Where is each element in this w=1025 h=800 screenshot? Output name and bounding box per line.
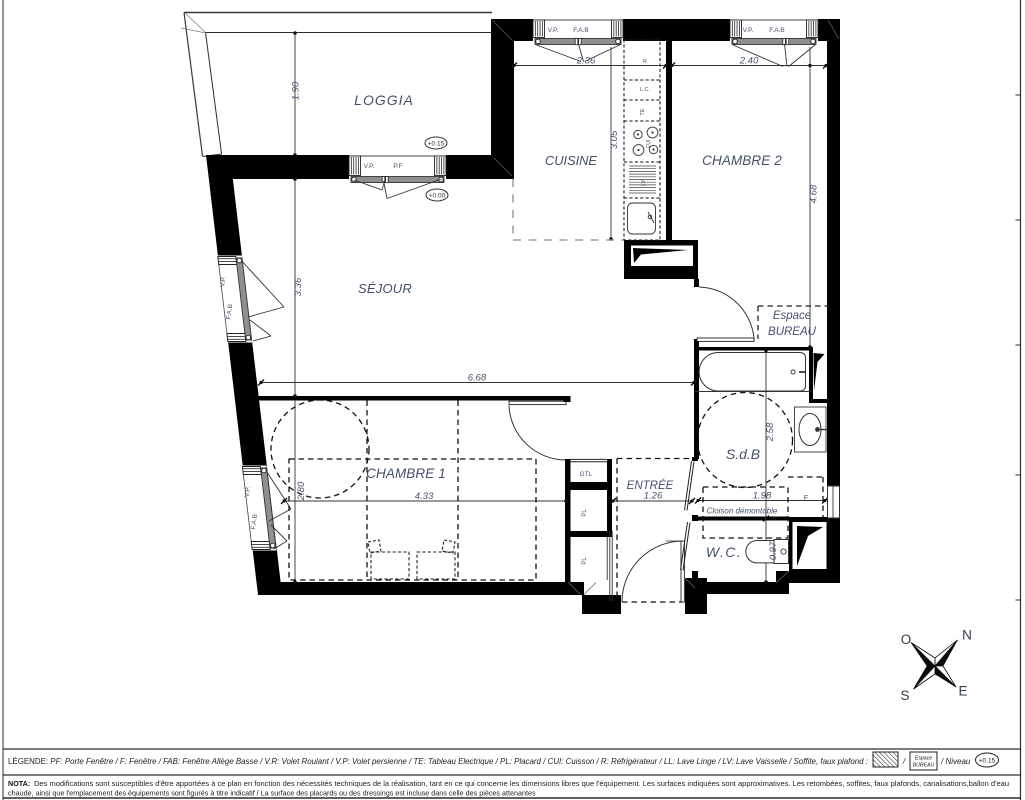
svg-text:CHAMBRE 1: CHAMBRE 1: [366, 466, 446, 481]
svg-text:R: R: [643, 59, 647, 65]
svg-text:W.C.: W.C.: [706, 544, 742, 560]
svg-text:V.P.: V.P.: [548, 27, 559, 34]
svg-text:6.68: 6.68: [468, 373, 487, 384]
svg-text:L.C.: L.C.: [640, 87, 651, 93]
svg-text:chaude, ainsi que l'emplacemen: chaude, ainsi que l'emplacement des équi…: [8, 789, 536, 798]
svg-text:CUISINE: CUISINE: [545, 153, 597, 168]
svg-text:F: F: [804, 495, 808, 502]
svg-text:+0.15: +0.15: [979, 758, 996, 765]
svg-text:Espace: Espace: [773, 310, 811, 322]
svg-text:N: N: [962, 628, 972, 643]
svg-text:S: S: [900, 688, 909, 703]
svg-text:V.P.: V.P.: [364, 163, 375, 170]
svg-text:/ Niveau: / Niveau: [940, 757, 971, 766]
svg-text:F.A.B: F.A.B: [769, 27, 785, 34]
svg-text:2.58: 2.58: [765, 422, 776, 442]
svg-text:SÉJOUR: SÉJOUR: [358, 281, 412, 296]
svg-text:GTL: GTL: [580, 471, 593, 478]
svg-text:E: E: [958, 684, 967, 699]
svg-text:F.A.B: F.A.B: [573, 27, 589, 34]
svg-text:LOGGIA: LOGGIA: [354, 92, 414, 108]
svg-text:PL: PL: [582, 509, 588, 517]
svg-text:+0.00: +0.00: [429, 192, 446, 199]
svg-text:CUI: CUI: [646, 140, 652, 149]
svg-text:V.P.: V.P.: [244, 486, 252, 498]
svg-text:4.33: 4.33: [415, 491, 434, 502]
svg-text:2.36: 2.36: [576, 56, 596, 67]
svg-text:CHAMBRE 2: CHAMBRE 2: [702, 153, 782, 168]
svg-text:Cloison démontable: Cloison démontable: [707, 507, 778, 516]
svg-text:Espace: Espace: [915, 756, 932, 762]
svg-text:3.36: 3.36: [293, 277, 304, 296]
svg-text:TE: TE: [640, 108, 646, 115]
svg-text:2.80: 2.80: [296, 481, 307, 501]
svg-text:PL: PL: [582, 557, 588, 565]
svg-text:S.d.B: S.d.B: [726, 446, 760, 462]
svg-text:V.P.: V.P.: [219, 276, 227, 288]
svg-text:ENTRÉE: ENTRÉE: [627, 479, 674, 492]
svg-text:LÉGENDE: PF: Porte Fenêtre /: LÉGENDE: PF: Porte Fenêtre / F: Fenêtre …: [8, 757, 868, 766]
svg-text:0.97: 0.97: [768, 541, 779, 560]
svg-text:BUREAU: BUREAU: [913, 763, 935, 769]
svg-text:NOTA:: NOTA:: [8, 779, 30, 788]
svg-text:+0.15: +0.15: [428, 140, 445, 147]
svg-text:P.F: P.F: [393, 163, 402, 170]
svg-text:3.05: 3.05: [609, 130, 620, 149]
svg-text:1.98: 1.98: [753, 491, 772, 502]
svg-text:1.90: 1.90: [291, 81, 302, 100]
svg-text:4.68: 4.68: [809, 184, 820, 203]
svg-text:1.26: 1.26: [644, 491, 663, 502]
svg-text:O: O: [901, 632, 912, 647]
svg-text:V.P.: V.P.: [743, 27, 754, 34]
svg-text:BUREAU: BUREAU: [768, 326, 817, 338]
svg-text:Des modifications sont suscept: Des modifications sont susceptibles d'êt…: [34, 779, 1009, 788]
svg-text:2.40: 2.40: [739, 56, 759, 67]
